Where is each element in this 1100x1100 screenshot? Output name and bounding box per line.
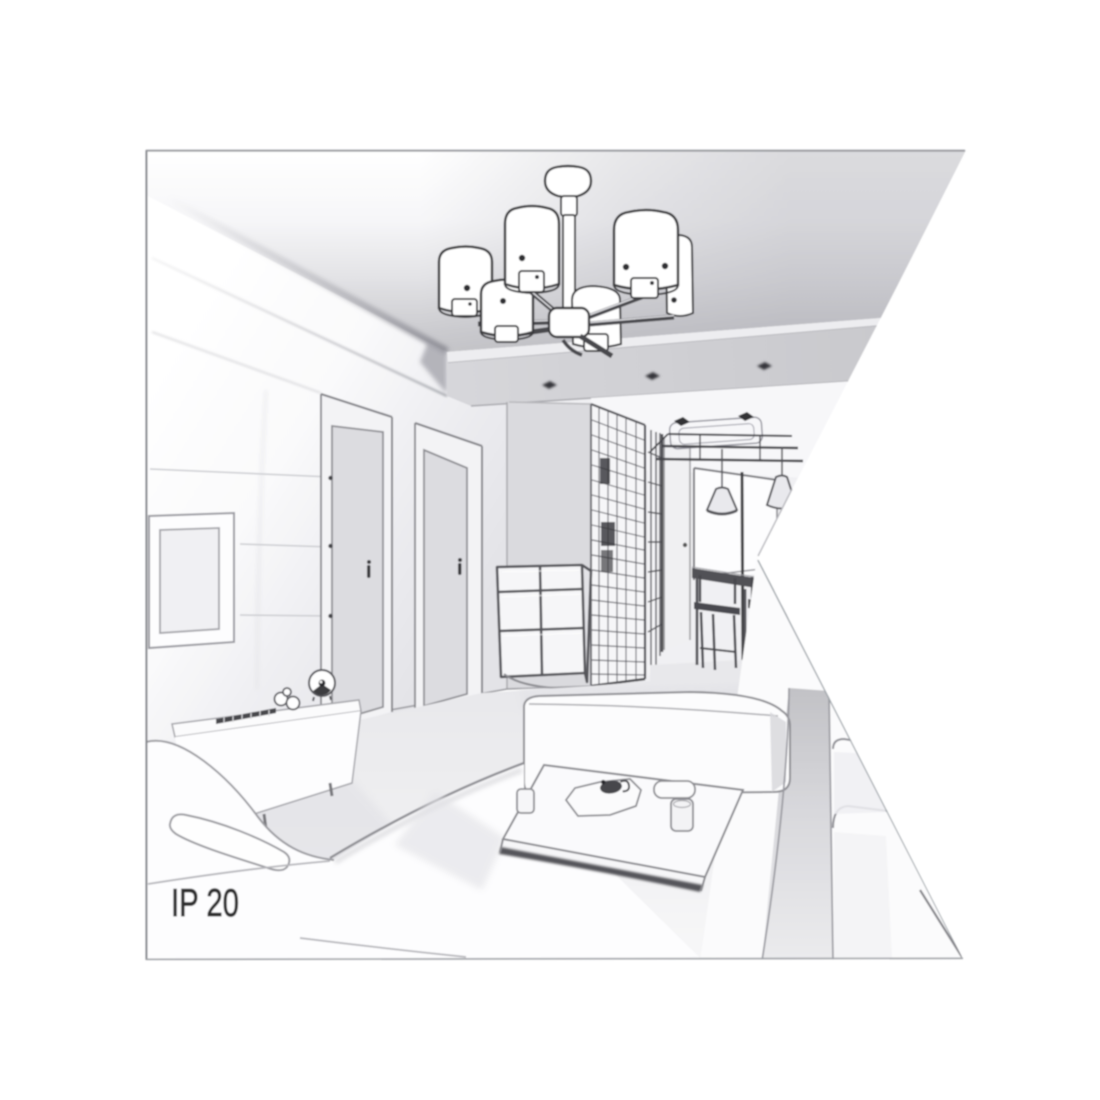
svg-text:IP 20: IP 20	[171, 882, 239, 925]
